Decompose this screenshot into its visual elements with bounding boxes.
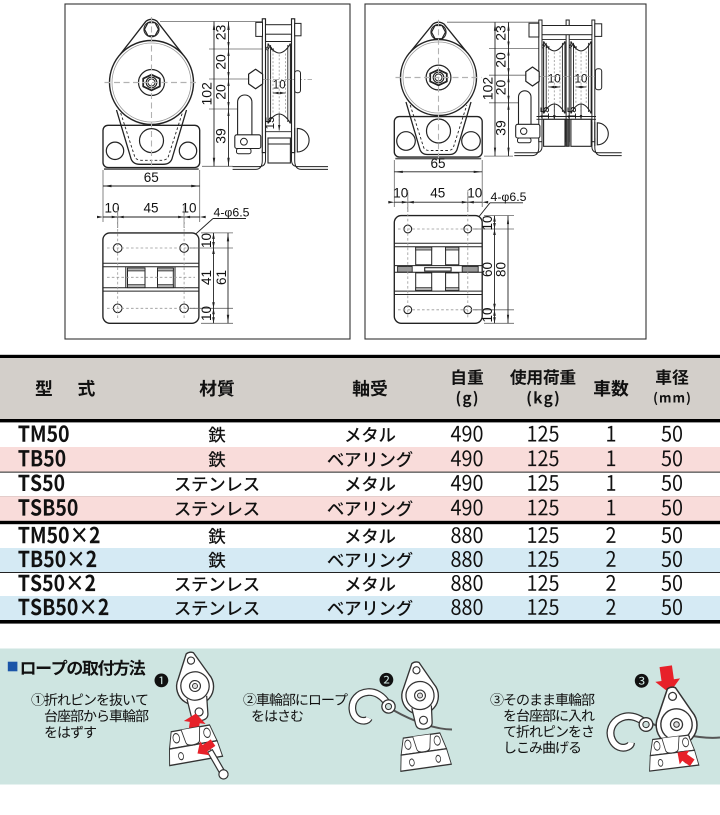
svg-text:10: 10 [393, 186, 408, 201]
svg-text:20: 20 [493, 52, 509, 68]
svg-text:15: 15 [540, 107, 552, 120]
svg-text:15: 15 [265, 117, 277, 130]
svg-text:65: 65 [430, 156, 445, 171]
svg-text:20: 20 [213, 84, 229, 100]
svg-text:45: 45 [143, 201, 158, 216]
svg-text:23: 23 [493, 25, 509, 41]
svg-text:10: 10 [548, 73, 561, 85]
svg-text:10: 10 [480, 307, 495, 322]
svg-text:10: 10 [480, 215, 495, 230]
svg-text:45: 45 [430, 186, 445, 201]
svg-text:10: 10 [467, 186, 482, 201]
svg-text:4-φ6.5: 4-φ6.5 [214, 206, 250, 220]
svg-text:20: 20 [493, 80, 509, 96]
svg-text:10: 10 [104, 201, 119, 216]
svg-text:65: 65 [144, 170, 159, 185]
svg-text:10: 10 [199, 233, 214, 248]
svg-text:61: 61 [214, 270, 229, 285]
svg-text:10: 10 [199, 306, 214, 321]
svg-text:23: 23 [213, 25, 229, 41]
svg-text:41: 41 [199, 270, 214, 285]
svg-text:10: 10 [273, 80, 286, 92]
svg-text:15: 15 [567, 107, 579, 120]
svg-text:20: 20 [213, 54, 229, 70]
svg-text:4-φ6.5: 4-φ6.5 [491, 190, 527, 204]
svg-text:80: 80 [494, 262, 509, 277]
svg-text:10: 10 [181, 201, 196, 216]
svg-text:39: 39 [213, 128, 229, 144]
svg-text:39: 39 [493, 120, 509, 136]
svg-text:10: 10 [575, 73, 588, 85]
